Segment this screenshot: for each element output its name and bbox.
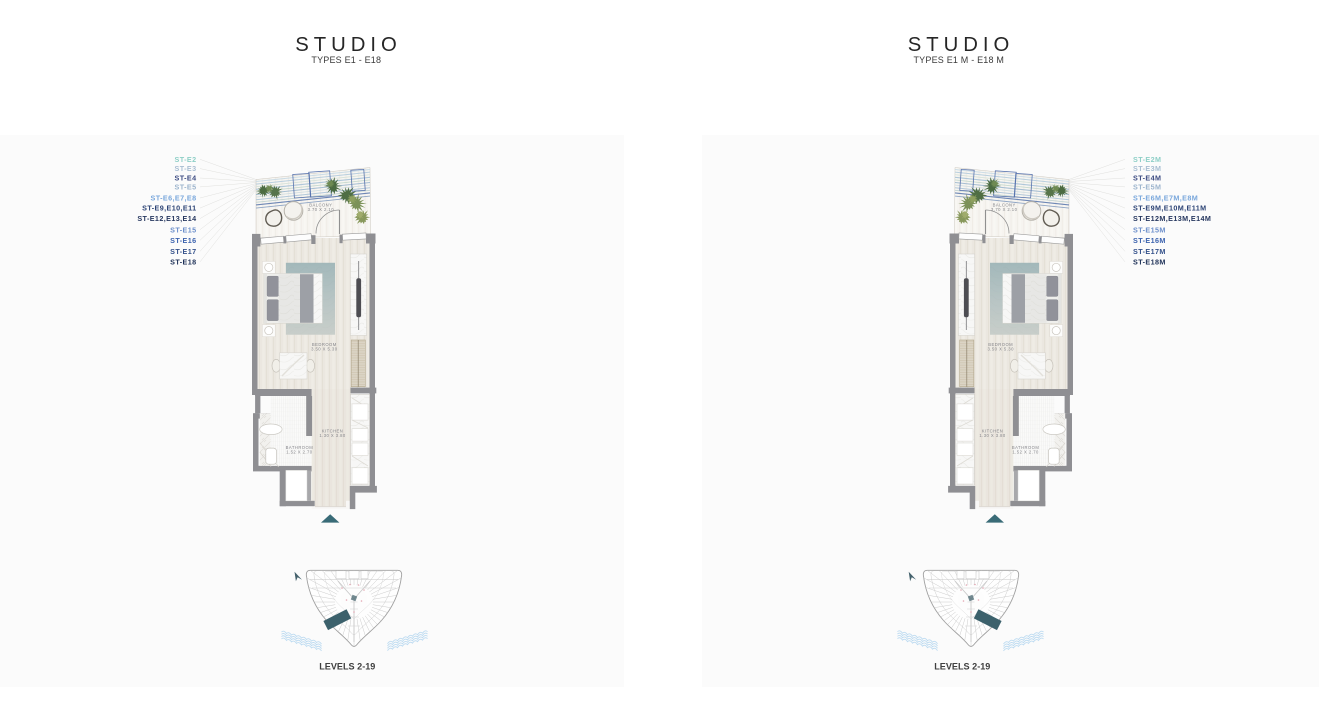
svg-text:ST-E15: ST-E15 (170, 225, 196, 234)
svg-text:STUDIO: STUDIO (908, 34, 1015, 56)
svg-text:1.30 X 3.80: 1.30 X 3.80 (319, 433, 346, 438)
svg-text:ST-E18: ST-E18 (170, 258, 196, 267)
svg-text:ST-E18M: ST-E18M (1133, 258, 1166, 267)
svg-text:ST-E4M: ST-E4M (1133, 174, 1161, 183)
svg-text:ST-E6,E7,E8: ST-E6,E7,E8 (151, 194, 197, 203)
svg-text:ST-E6M,E7M,E8M: ST-E6M,E7M,E8M (1133, 194, 1198, 203)
svg-text:LEVELS 2-19: LEVELS 2-19 (319, 662, 375, 672)
svg-text:ST-E9M,E10M,E11M: ST-E9M,E10M,E11M (1133, 204, 1207, 213)
svg-text:ST-E2: ST-E2 (175, 155, 197, 164)
svg-text:ST-E16M: ST-E16M (1133, 236, 1166, 245)
svg-text:ST-E17: ST-E17 (170, 247, 196, 256)
svg-text:ST-E12M,E13M,E14M: ST-E12M,E13M,E14M (1133, 214, 1211, 223)
svg-text:ST-E2M: ST-E2M (1133, 155, 1161, 164)
svg-text:STUDIO: STUDIO (295, 34, 402, 56)
svg-text:TYPES E1 M - E18 M: TYPES E1 M - E18 M (913, 55, 1004, 65)
svg-text:ST-E17M: ST-E17M (1133, 247, 1166, 256)
svg-text:ST-E3: ST-E3 (175, 164, 197, 173)
svg-text:ST-E9,E10,E11: ST-E9,E10,E11 (142, 204, 196, 213)
svg-text:ST-E5: ST-E5 (175, 183, 197, 192)
svg-text:ST-E3M: ST-E3M (1133, 164, 1161, 173)
svg-text:LEVELS 2-19: LEVELS 2-19 (934, 662, 990, 672)
svg-text:1.52 X 2.70: 1.52 X 2.70 (1012, 450, 1039, 455)
svg-text:ST-E15M: ST-E15M (1133, 225, 1166, 234)
svg-text:TYPES E1 - E18: TYPES E1 - E18 (311, 55, 381, 65)
svg-text:ST-E12,E13,E14: ST-E12,E13,E14 (137, 214, 196, 223)
svg-text:3.50 X 5.30: 3.50 X 5.30 (988, 347, 1015, 352)
svg-text:3.70 X 2.10: 3.70 X 2.10 (308, 207, 335, 212)
svg-text:1.52 X 2.70: 1.52 X 2.70 (286, 450, 313, 455)
svg-text:ST-E4: ST-E4 (175, 174, 197, 183)
svg-text:1.30 X 3.80: 1.30 X 3.80 (979, 433, 1006, 438)
svg-text:3.50 X 5.30: 3.50 X 5.30 (311, 347, 338, 352)
svg-text:ST-E16: ST-E16 (170, 236, 196, 245)
svg-text:ST-E5M: ST-E5M (1133, 183, 1161, 192)
svg-text:3.70 X 2.10: 3.70 X 2.10 (991, 207, 1018, 212)
